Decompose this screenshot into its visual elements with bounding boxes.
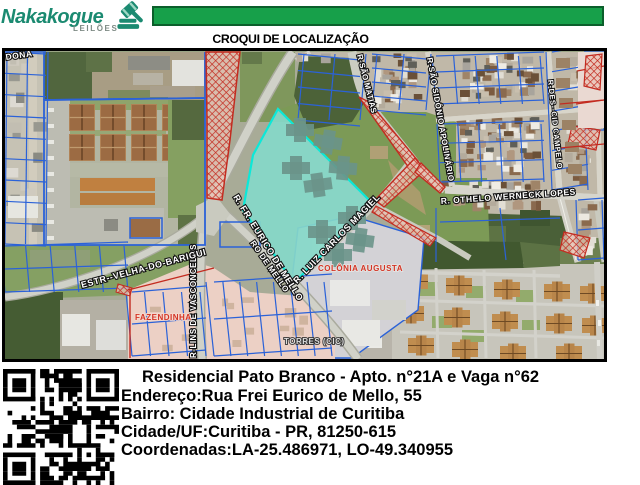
svg-text:FAZENDINHA: FAZENDINHA: [135, 313, 192, 322]
svg-text:COLÔNIA AUGUSTA: COLÔNIA AUGUSTA: [318, 264, 403, 273]
svg-text:TORRES (CIC): TORRES (CIC): [284, 337, 345, 346]
